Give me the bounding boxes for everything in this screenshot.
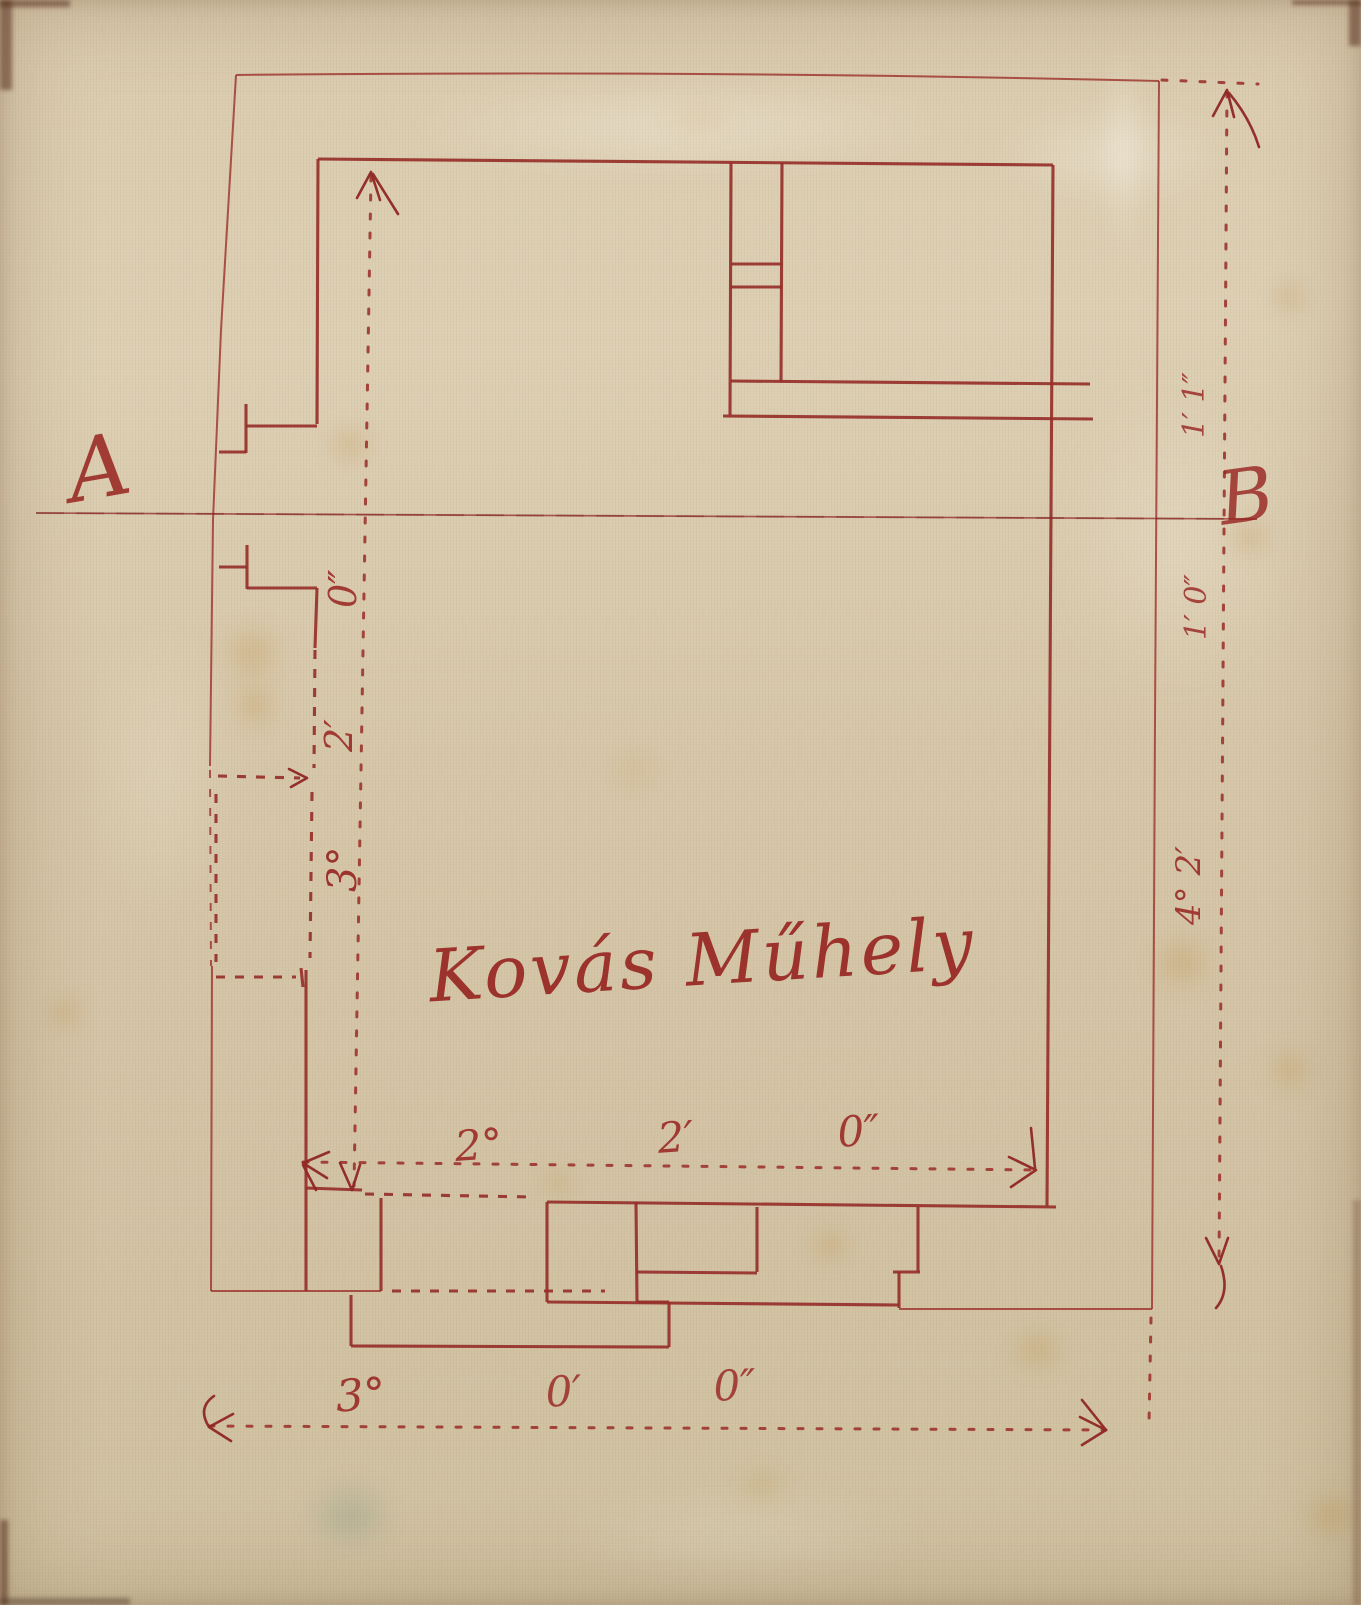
dimension-label: 0″ [321, 570, 365, 608]
dimension-label: 2′ [317, 719, 361, 753]
dimension-label: 4° 2′ [1169, 846, 1209, 926]
dimension-label: 0″ [836, 1105, 882, 1157]
dimension-label: 1′ 1″ [1177, 371, 1212, 438]
section-marker-a: A [52, 414, 137, 524]
dimension-lines [209, 80, 1258, 1430]
dimension-label: 0′ [544, 1366, 583, 1417]
dimension-label: 3° [334, 1368, 387, 1422]
title-inscription: Kovás Műhely [425, 901, 979, 1018]
dimension-label: 3° [320, 847, 366, 892]
drawing-sheet: A B Kovás Műhely 3° 0′ 0″ 2° 2′ 0″ 0″ 2′… [0, 0, 1361, 1605]
section-marker-b: B [1211, 450, 1279, 543]
dimension-label: 0″ [712, 1360, 757, 1411]
dimension-label: 1′ 0″ [1179, 573, 1214, 640]
inscriptions: A B Kovás Műhely 3° 0′ 0″ 2° 2′ 0″ 0″ 2′… [52, 371, 1279, 1422]
floor-plan-drawing: A B Kovás Műhely 3° 0′ 0″ 2° 2′ 0″ 0″ 2′… [0, 0, 1361, 1605]
wall-lines [216, 159, 1093, 1347]
dimension-label: 2° [452, 1119, 504, 1171]
section-line [36, 513, 1257, 519]
dimension-label: 2′ [655, 1111, 696, 1163]
